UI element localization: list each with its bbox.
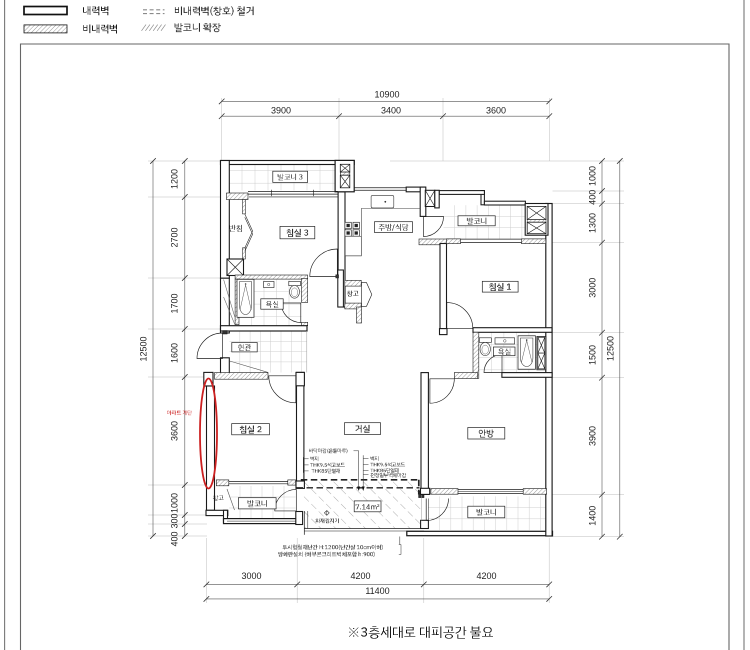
svg-text:3000: 3000 [241, 571, 261, 581]
svg-text:1400: 1400 [588, 506, 598, 526]
svg-text:2700: 2700 [170, 227, 180, 247]
svg-text:1700: 1700 [170, 293, 180, 313]
svg-text:3000: 3000 [588, 278, 598, 298]
svg-text:1300: 1300 [588, 213, 598, 233]
svg-text:3900: 3900 [588, 426, 598, 446]
svg-text:400: 400 [588, 190, 598, 205]
svg-text:11400: 11400 [365, 586, 389, 596]
svg-text:10900: 10900 [374, 89, 399, 99]
svg-text:1000: 1000 [588, 166, 598, 186]
svg-text:4200: 4200 [476, 571, 496, 581]
svg-text:1200: 1200 [170, 169, 180, 189]
svg-text:1500: 1500 [588, 345, 598, 365]
svg-text:3900: 3900 [271, 105, 291, 115]
svg-text:3400: 3400 [381, 105, 401, 115]
svg-text:300: 300 [170, 513, 180, 528]
svg-text:12500: 12500 [139, 336, 149, 361]
svg-text:400: 400 [170, 531, 180, 546]
svg-text:1600: 1600 [170, 343, 180, 363]
svg-text:4200: 4200 [350, 571, 370, 581]
svg-text:1000: 1000 [170, 493, 180, 513]
svg-text:3600: 3600 [486, 105, 506, 115]
svg-text:12500: 12500 [606, 336, 616, 361]
svg-text:3600: 3600 [170, 421, 180, 441]
